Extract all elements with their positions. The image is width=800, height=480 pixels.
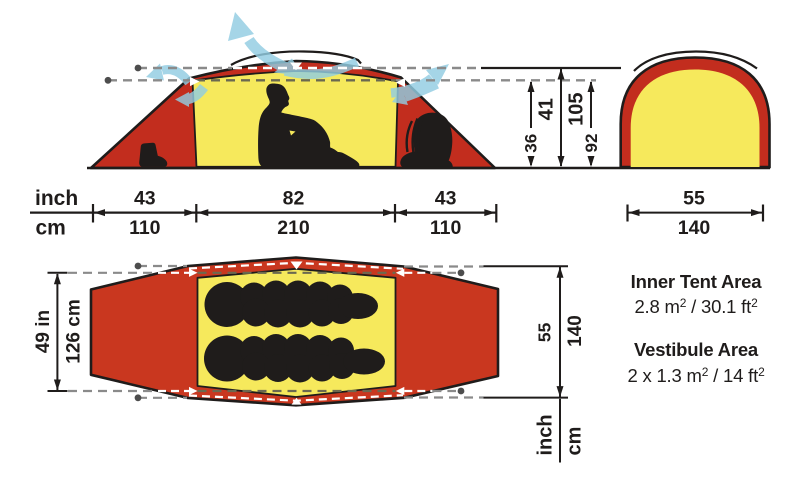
svg-text:82: 82 bbox=[283, 188, 305, 210]
svg-text:cm: cm bbox=[564, 427, 586, 456]
svg-text:49 in: 49 in bbox=[33, 310, 54, 353]
svg-text:105: 105 bbox=[565, 93, 587, 126]
svg-text:41: 41 bbox=[535, 98, 557, 120]
svg-text:cm: cm bbox=[36, 217, 66, 240]
svg-text:Inner Tent Area: Inner Tent Area bbox=[631, 271, 763, 292]
svg-text:43: 43 bbox=[435, 188, 457, 210]
svg-text:36: 36 bbox=[521, 134, 540, 153]
svg-text:Vestibule Area: Vestibule Area bbox=[634, 339, 759, 360]
svg-text:inch: inch bbox=[35, 187, 78, 210]
svg-text:140: 140 bbox=[565, 315, 586, 347]
svg-text:110: 110 bbox=[430, 217, 462, 239]
svg-text:140: 140 bbox=[678, 217, 711, 239]
svg-text:92: 92 bbox=[582, 134, 601, 153]
svg-text:2 x 1.3 m2 / 14 ft2: 2 x 1.3 m2 / 14 ft2 bbox=[627, 365, 765, 386]
svg-text:55: 55 bbox=[683, 187, 705, 209]
svg-text:210: 210 bbox=[277, 217, 310, 239]
svg-text:2.8 m2 / 30.1 ft2: 2.8 m2 / 30.1 ft2 bbox=[634, 296, 758, 317]
svg-text:126 cm: 126 cm bbox=[64, 299, 85, 363]
svg-text:110: 110 bbox=[129, 217, 161, 239]
svg-text:55: 55 bbox=[535, 322, 555, 342]
svg-text:43: 43 bbox=[134, 188, 156, 210]
svg-text:inch: inch bbox=[535, 414, 557, 455]
